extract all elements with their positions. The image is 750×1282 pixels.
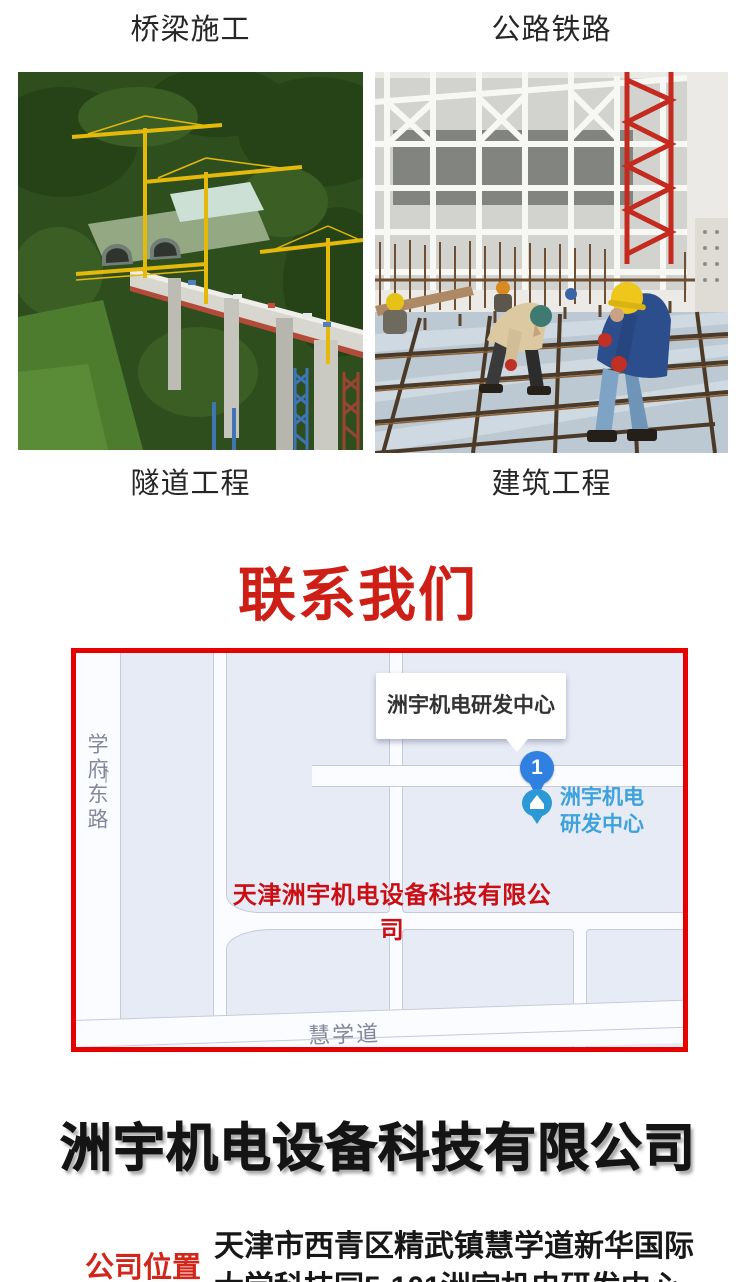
map-block bbox=[120, 648, 214, 1047]
company-title: 洲宇机电设备科技有限公司 bbox=[0, 1106, 750, 1181]
poi-label-line2: 研发中心 bbox=[560, 811, 644, 838]
caption-bridge-construction: 桥梁施工 bbox=[18, 6, 363, 48]
company-location-label: 公司位置 bbox=[85, 1244, 201, 1282]
poi-glyph bbox=[530, 795, 544, 804]
map-marker-pin-icon: 1 bbox=[520, 751, 554, 785]
building-construction-workers-photo bbox=[375, 72, 728, 453]
map-company-name-overlay: 天津洲宇机电设备科技有限公司 bbox=[222, 875, 562, 945]
poi-label-line1: 洲宇机电 bbox=[560, 784, 644, 811]
contact-us-heading: 联系我们 bbox=[0, 548, 716, 632]
map-tooltip: 洲宇机电研发中心 bbox=[376, 673, 566, 739]
caption-highway-railway: 公路铁路 bbox=[375, 6, 728, 48]
product-page: 桥梁施工 公路铁路 bbox=[0, 0, 750, 1282]
map-canvas: 慧学道 学府东路 ↑ 洲宇机电研发中心 1 洲宇机电 研发中心 天津洲宇机电设备… bbox=[76, 653, 683, 1047]
company-address: 天津市西青区精武镇慧学道新华国际 大学科技园5-101洲宇机电研发中心 bbox=[214, 1226, 714, 1282]
caption-tunnel-engineering: 隧道工程 bbox=[18, 460, 363, 502]
poi-building-icon bbox=[522, 789, 552, 817]
road-label-huixuedao: 慧学道 bbox=[308, 1016, 381, 1050]
company-address-line2: 大学科技园5-101洲宇机电研发中心 bbox=[214, 1267, 714, 1282]
company-address-line1: 天津市西青区精武镇慧学道新华国际 bbox=[214, 1226, 714, 1267]
poi-glyph bbox=[530, 804, 544, 809]
poi-label: 洲宇机电 研发中心 bbox=[560, 784, 644, 838]
north-arrow-icon: ↑ bbox=[100, 761, 112, 789]
caption-building-engineering: 建筑工程 bbox=[375, 460, 728, 502]
tunnel-bridge-construction-photo bbox=[18, 72, 363, 450]
location-map-image: 慧学道 学府东路 ↑ 洲宇机电研发中心 1 洲宇机电 研发中心 天津洲宇机电设备… bbox=[71, 648, 688, 1052]
